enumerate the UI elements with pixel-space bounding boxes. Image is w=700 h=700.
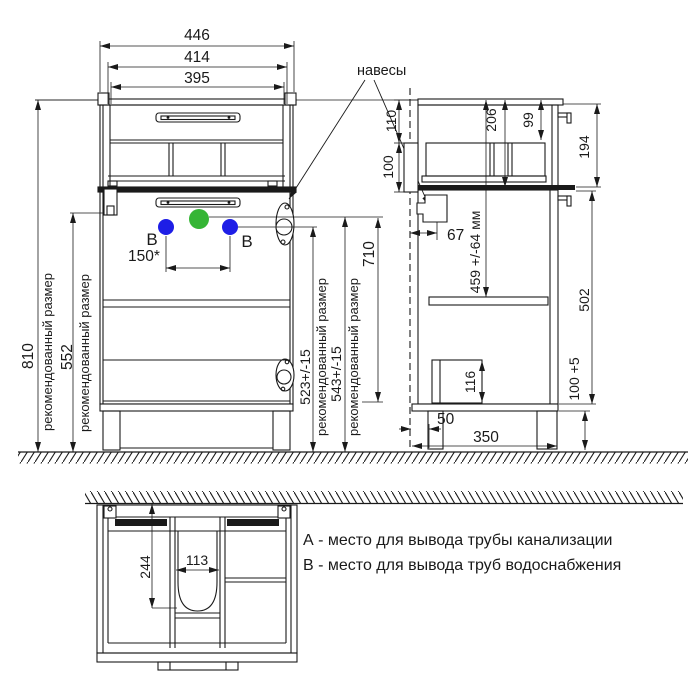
- dim-502: 502: [576, 288, 592, 312]
- wall-hatch: [85, 491, 683, 503]
- legend-line-b: В - место для вывода труб водоснабжения: [303, 557, 621, 574]
- dim-50: 50: [437, 411, 455, 428]
- dim-414: 414: [184, 49, 210, 66]
- dim-113: 113: [186, 552, 209, 568]
- front-view-dimension-labels: 446 414 395 810 рекомендованный размер 5…: [20, 27, 378, 436]
- corner-hanger-right: [278, 506, 290, 518]
- recommended-size-2: рекомендованный размер: [77, 274, 92, 432]
- wall-hanger-bracket-left: [104, 189, 117, 215]
- top-view-structure: [85, 491, 683, 670]
- drawer-handle: [156, 113, 240, 122]
- drawer-box-inside: [108, 143, 285, 186]
- door-hinge-bottom: [276, 359, 294, 391]
- top-view-handle: [158, 662, 238, 670]
- dim-99: 99: [520, 112, 536, 128]
- water-outlet-left-b: [158, 219, 174, 235]
- door-hinge-top: [276, 203, 294, 245]
- dim-446: 446: [184, 27, 210, 44]
- dim-67: 67: [447, 227, 464, 244]
- technical-drawing: В В 446 414 395 810 рекомендованный разм…: [0, 0, 700, 700]
- outlet-label-right: В: [241, 232, 252, 251]
- dim-350: 350: [473, 429, 499, 446]
- dim-194: 194: [576, 135, 592, 159]
- recommended-size-1: рекомендованный размер: [40, 273, 55, 431]
- dim-459: 459 +/-64 мм: [467, 211, 483, 294]
- side-countertop-separator: [410, 185, 575, 190]
- side-shelf: [429, 297, 548, 305]
- side-hanger-bracket: [417, 195, 447, 222]
- pipe-outlets: В В: [146, 209, 383, 251]
- water-outlet-right-b: [222, 219, 238, 235]
- side-handle-bottom: [558, 196, 571, 206]
- dim-395: 395: [184, 70, 210, 87]
- dim-206: 206: [483, 108, 499, 132]
- side-drawer-box: [422, 143, 546, 182]
- dim-244: 244: [137, 555, 153, 579]
- outlet-label-left: В: [146, 230, 157, 249]
- legend-line-a: А - место для вывода трубы канализации: [303, 532, 612, 549]
- dim-543: 543+/-15: [328, 346, 344, 402]
- dim-100: 100: [380, 155, 396, 179]
- door-handle: [156, 198, 240, 207]
- drain-outlet-a: [189, 209, 209, 229]
- hanger-rail-left: [115, 519, 167, 526]
- side-handle-top: [558, 113, 571, 123]
- side-leg-front: [537, 411, 557, 449]
- wall-rail: [404, 143, 418, 192]
- leg-right: [273, 411, 290, 450]
- dim-150: 150*: [128, 248, 160, 265]
- side-view-structure: [404, 88, 575, 450]
- hangers-label: навесы: [357, 63, 406, 79]
- sink-cutout: [178, 531, 217, 611]
- dim-110: 110: [383, 110, 399, 133]
- leg-left: [103, 411, 120, 450]
- hanger-rail-right: [227, 519, 279, 526]
- dim-810: 810: [20, 343, 37, 369]
- dim-552: 552: [59, 344, 76, 370]
- corner-hanger-left: [104, 506, 116, 518]
- top-view-dimension-labels: 244 113: [137, 552, 208, 579]
- drawing-page: В В 446 414 395 810 рекомендованный разм…: [0, 0, 700, 700]
- countertop-separator: [98, 187, 296, 192]
- recommended-size-4: рекомендованный размер: [346, 278, 361, 436]
- dim-710: 710: [361, 241, 378, 267]
- dim-116: 116: [462, 371, 478, 394]
- dim-100-plus-5: 100 +5: [566, 357, 582, 400]
- recommended-size-3: рекомендованный размер: [314, 278, 329, 436]
- dim-523: 523+/-15: [297, 349, 313, 405]
- legend: А - место для вывода трубы канализации В…: [303, 532, 621, 574]
- ground-line: [18, 452, 688, 464]
